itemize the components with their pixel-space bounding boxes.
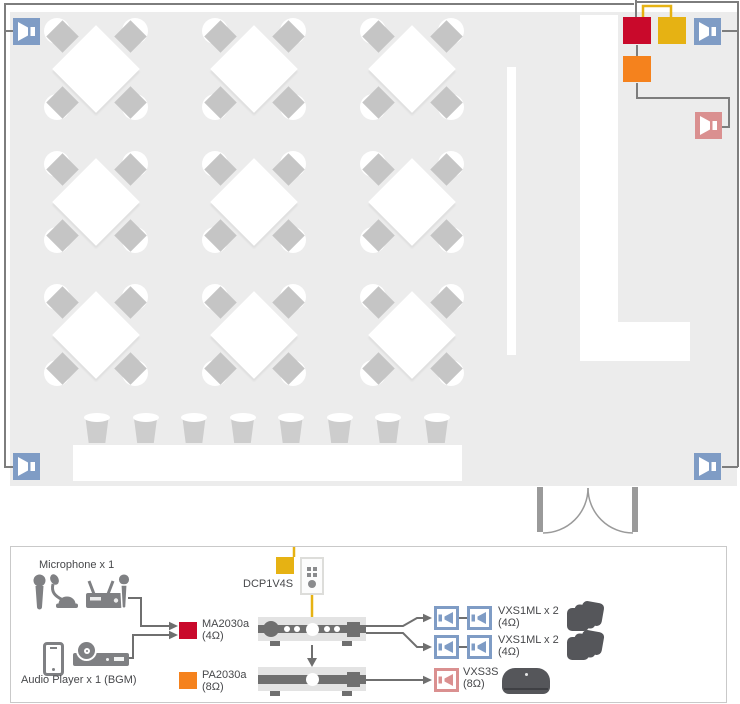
amp-foot [342, 691, 352, 696]
ma2030a-location-chip [623, 17, 651, 44]
dining-table [337, 127, 487, 277]
dining-table [21, 0, 171, 144]
microphone-icons [31, 573, 131, 613]
speaker-icon [467, 635, 492, 659]
amp-foot [270, 641, 280, 646]
dining-table [179, 127, 329, 277]
dcp1v4s-color-chip [276, 557, 294, 574]
dining-table [21, 127, 171, 277]
wall-controller-icon [300, 557, 324, 595]
speaker-icon [467, 606, 492, 630]
dining-table [337, 260, 487, 410]
vxs3s-product-image [502, 668, 550, 694]
speaker-icon [434, 668, 459, 692]
bar-stool [278, 414, 304, 444]
vxs3s-impedance: (8Ω) [463, 678, 485, 690]
bar-stool [424, 414, 450, 444]
ma2030a-amp-image [258, 617, 366, 641]
pa2030a-name: PA2030a [202, 669, 246, 681]
smartphone-icon [43, 642, 64, 676]
vxs1ml-product-image [567, 631, 605, 664]
pa2030a-label: PA2030a (8Ω) [202, 669, 246, 693]
bar-counter [73, 445, 462, 481]
pa2030a-location-chip [623, 56, 651, 82]
bar-stool [84, 414, 110, 444]
ma2030a-impedance: (4Ω) [202, 630, 224, 642]
pa2030a-color-chip [179, 672, 197, 689]
microphone-group-label: Microphone x 1 [39, 559, 114, 571]
vxs1ml-row2-impedance: (4Ω) [498, 646, 520, 658]
gooseneck-mic-icon [48, 573, 78, 608]
dcp1v4s-location-chip [658, 17, 686, 44]
vxs1ml-row2-label: VXS1ML x 2 (4Ω) [498, 634, 559, 658]
vxs1ml-row1-label: VXS1ML x 2 (4Ω) [498, 605, 559, 629]
wall-divider [507, 67, 516, 355]
speaker-icon [694, 453, 721, 480]
speaker-icon [694, 18, 721, 45]
wireless-receiver-icon [86, 581, 122, 608]
screenshot-root: Microphone x 1 [0, 0, 740, 704]
dining-table [337, 0, 487, 144]
vxs1ml-row1-name: VXS1ML x 2 [498, 605, 559, 617]
vxs1ml-row1-impedance: (4Ω) [498, 617, 520, 629]
bar-stool [230, 414, 256, 444]
door-post-right [632, 487, 638, 532]
handheld-mic-icon [34, 575, 46, 610]
amp-foot [270, 691, 280, 696]
dining-table [179, 0, 329, 144]
bar-stool [133, 414, 159, 444]
amp-foot [342, 641, 352, 646]
cd-player-icon [73, 642, 129, 666]
l-counter-vertical [580, 15, 618, 361]
dining-table [21, 260, 171, 410]
audio-player-group-label: Audio Player x 1 (BGM) [21, 674, 137, 686]
ma2030a-label: MA2030a (4Ω) [202, 618, 249, 642]
pa2030a-impedance: (8Ω) [202, 681, 224, 693]
speaker-icon [13, 453, 40, 480]
system-diagram-panel: Microphone x 1 [10, 546, 727, 703]
speaker-icon [695, 112, 722, 139]
ma2030a-name: MA2030a [202, 618, 249, 630]
vxs3s-label: VXS3S (8Ω) [463, 666, 498, 690]
bar-stool [181, 414, 207, 444]
l-counter-foot [618, 322, 690, 361]
speaker-icon [434, 606, 459, 630]
speaker-icon [434, 635, 459, 659]
vxs1ml-row2-name: VXS1ML x 2 [498, 634, 559, 646]
vxs3s-name: VXS3S [463, 666, 498, 678]
dcp1v4s-label: DCP1V4S [243, 578, 293, 590]
pa2030a-amp-image [258, 667, 366, 691]
dining-table [179, 260, 329, 410]
ma2030a-color-chip [179, 622, 197, 639]
door-post-left [537, 487, 543, 532]
speaker-icon [13, 18, 40, 45]
bar-stool [375, 414, 401, 444]
bar-stool [327, 414, 353, 444]
